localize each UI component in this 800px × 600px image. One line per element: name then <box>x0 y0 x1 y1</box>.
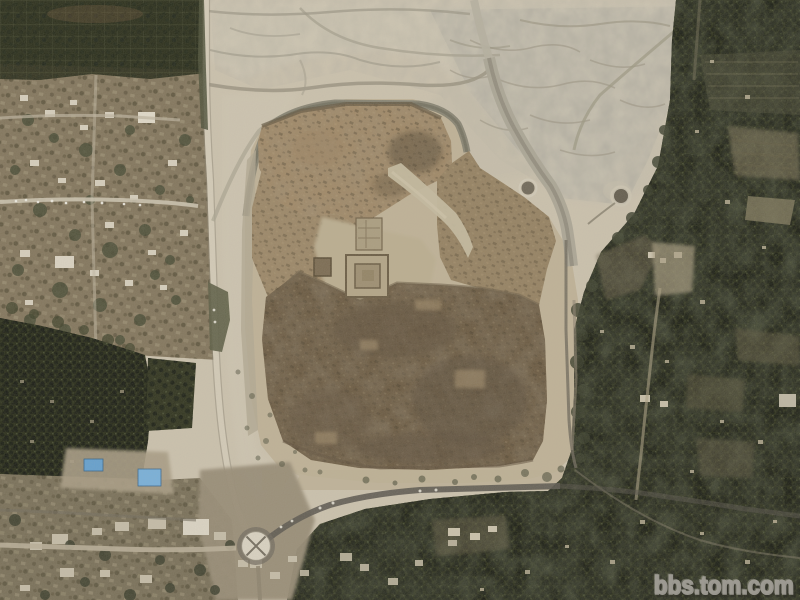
svg-text:bbs.tom.com: bbs.tom.com <box>654 570 794 600</box>
